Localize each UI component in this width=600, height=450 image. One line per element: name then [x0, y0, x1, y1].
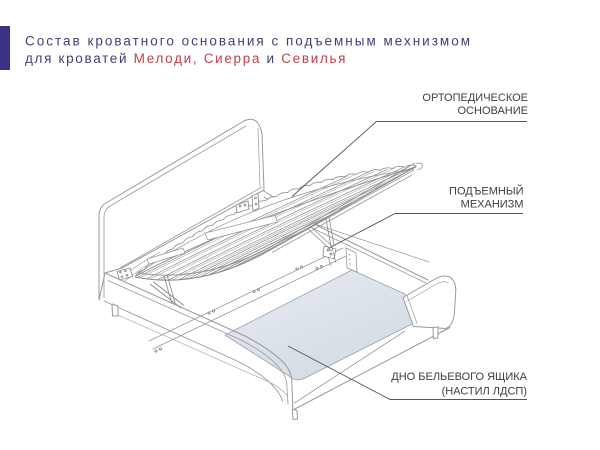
svg-text:ОРТОПЕДИЧЕСКОЕ: ОРТОПЕДИЧЕСКОЕ	[422, 92, 528, 104]
svg-text:(НАСТИЛ ЛДСП): (НАСТИЛ ЛДСП)	[442, 386, 527, 398]
svg-text:для кроватей Мелоди, Сиерра и: для кроватей Мелоди, Сиерра и Севилья	[25, 51, 347, 66]
svg-text:ОСНОВАНИЕ: ОСНОВАНИЕ	[458, 105, 529, 117]
svg-text:ДНО БЕЛЬЕВОГО ЯЩИКА: ДНО БЕЛЬЕВОГО ЯЩИКА	[391, 371, 527, 383]
svg-text:Состав кроватного основания с: Состав кроватного основания с подъемным …	[25, 34, 472, 49]
svg-text:МЕХАНИЗМ: МЕХАНИЗМ	[461, 199, 524, 211]
svg-text:ПОДЪЕМНЫЙ: ПОДЪЕМНЫЙ	[449, 185, 523, 198]
